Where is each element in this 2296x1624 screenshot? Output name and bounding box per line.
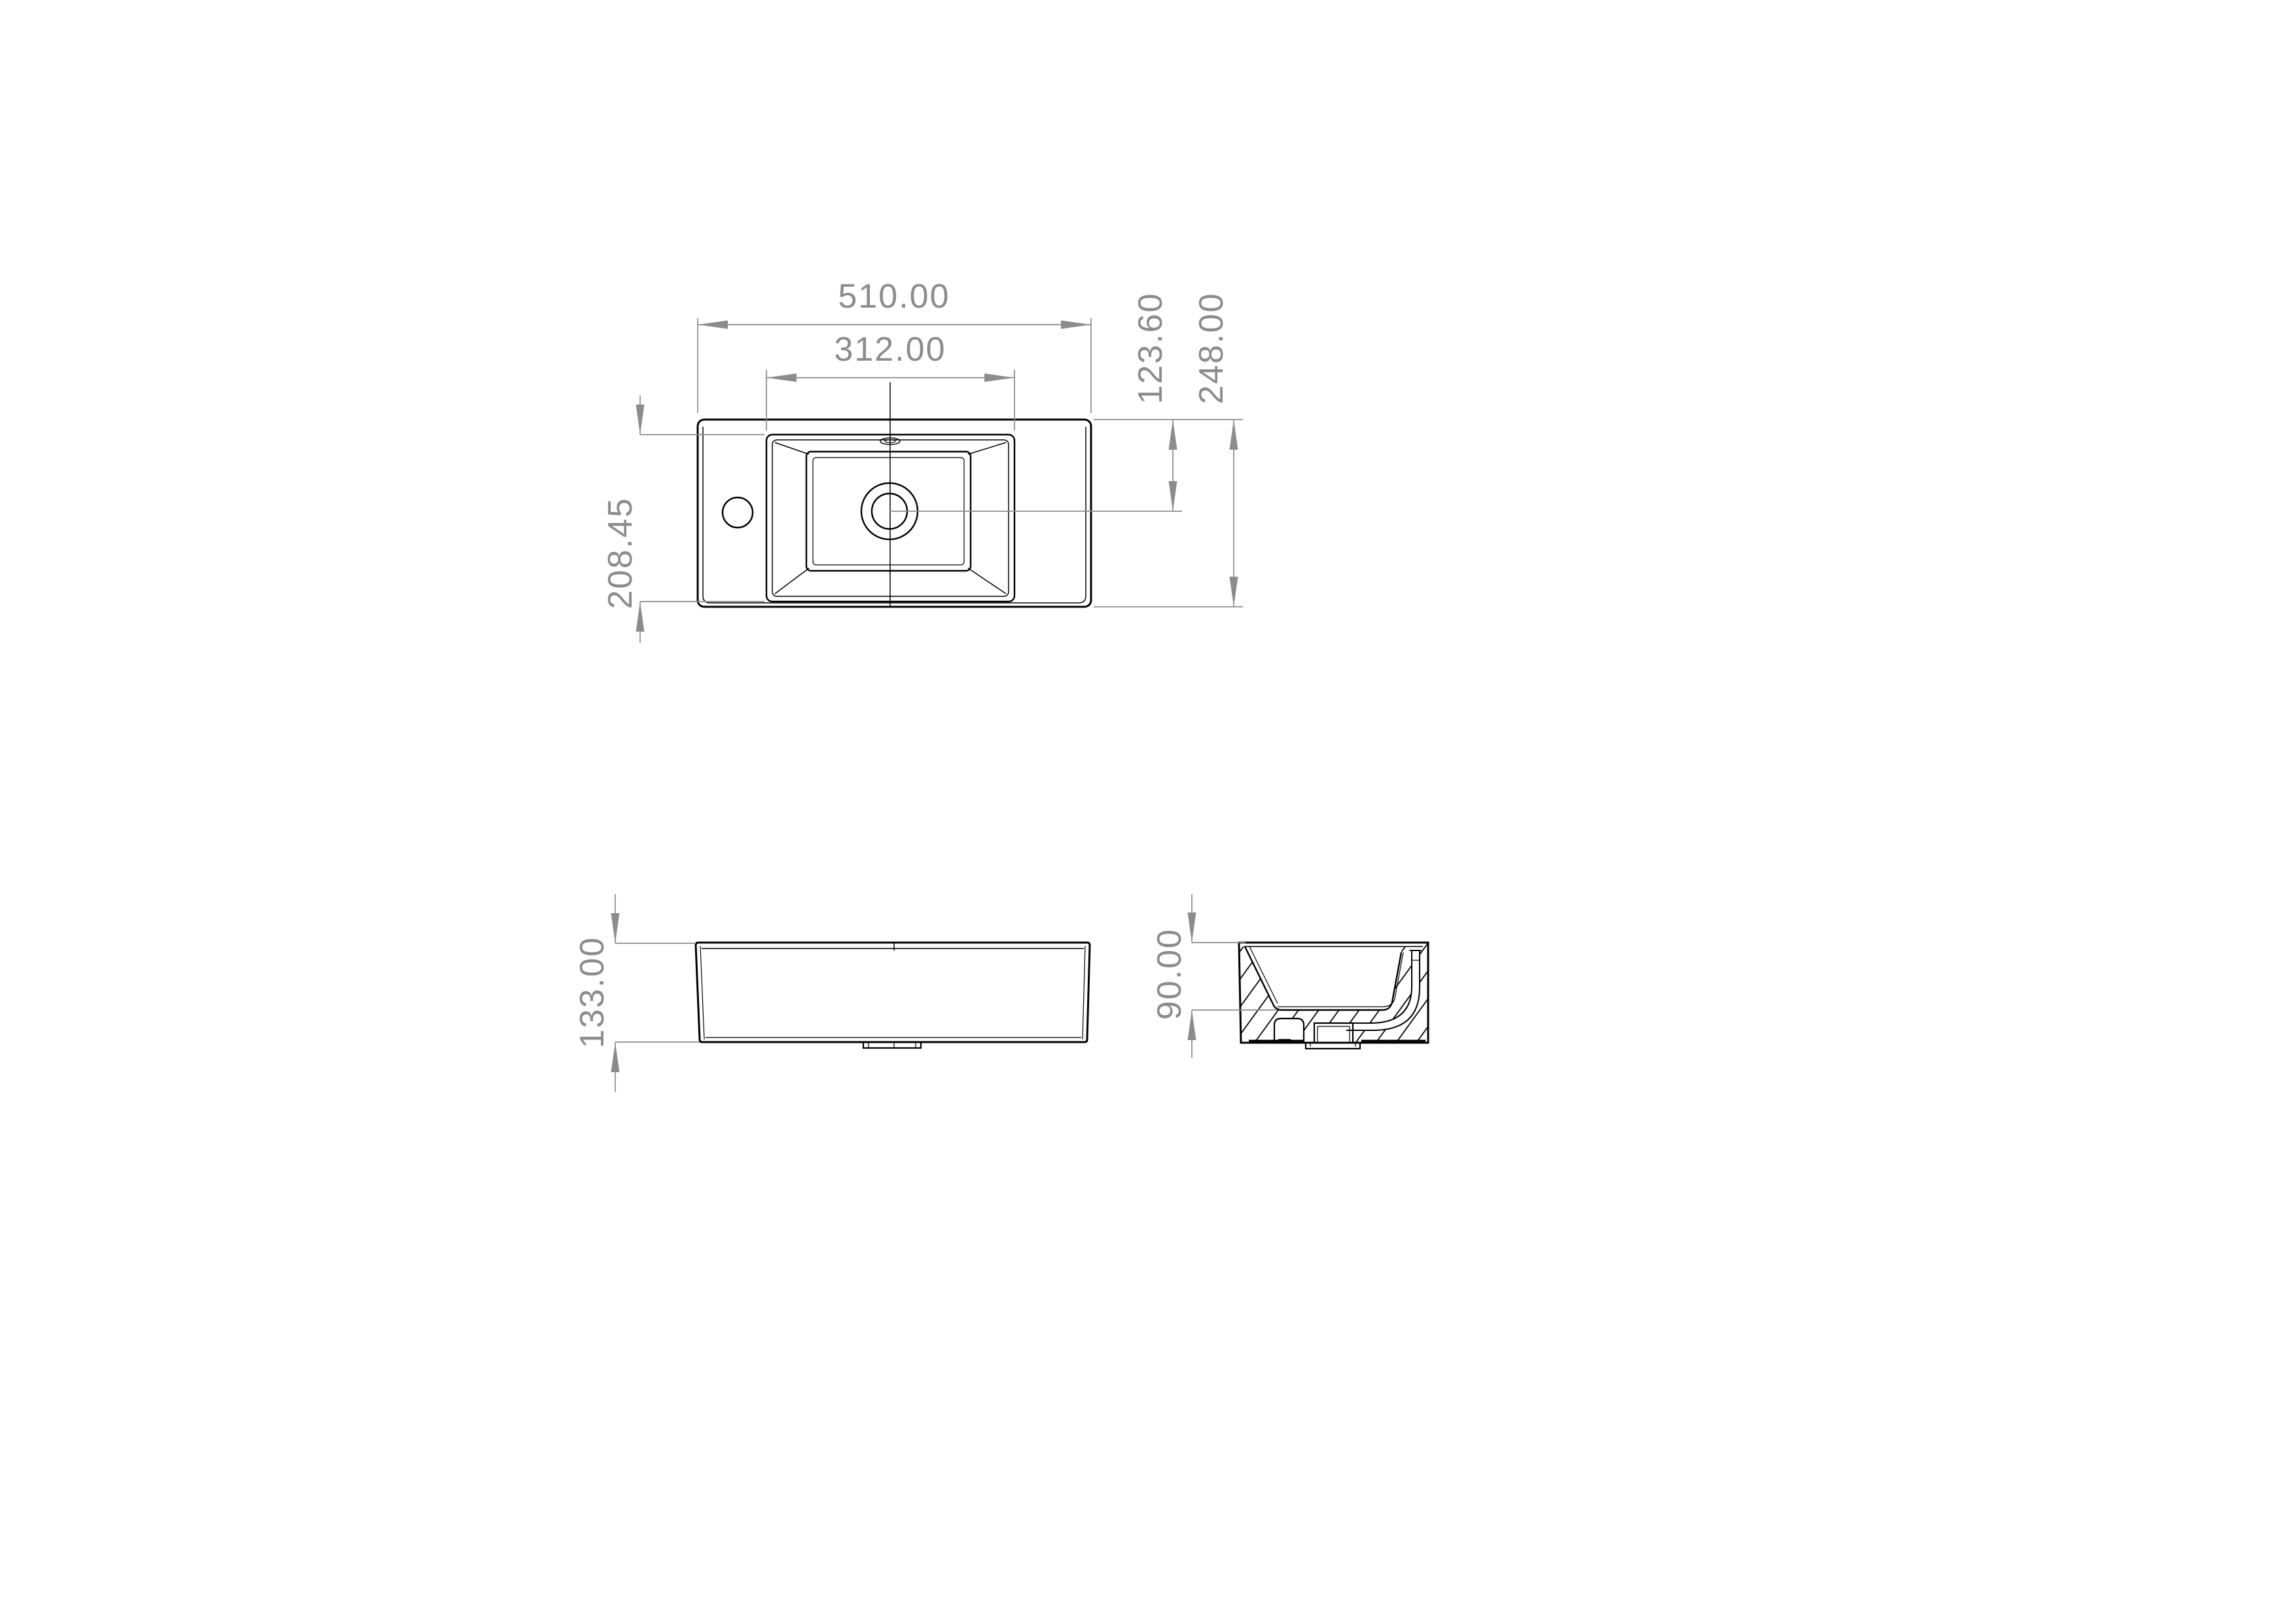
front-left-edge-line xyxy=(700,946,704,1039)
dim-arrow xyxy=(1169,420,1177,450)
dim-overall-width-label: 510.00 xyxy=(838,278,950,316)
dim-basin-width-label: 312.00 xyxy=(834,331,946,369)
basin-corner-diagonal xyxy=(775,568,809,594)
sink-outline xyxy=(698,420,1091,607)
dim-overall-height-label: 133.00 xyxy=(573,936,611,1048)
dim-overall-height: 133.00 xyxy=(573,894,700,1092)
dim-arrow xyxy=(1230,577,1238,607)
side-section-view xyxy=(1239,943,1429,1049)
dim-arrow xyxy=(636,405,645,435)
plan-view xyxy=(698,382,1091,607)
front-right-edge-line xyxy=(1083,946,1085,1039)
front-view xyxy=(696,943,1090,1048)
faucet-hole xyxy=(723,497,753,528)
sink-inner-edge xyxy=(703,427,1086,603)
basin-corner-diagonal xyxy=(775,442,809,454)
dim-arrow xyxy=(1188,1010,1196,1040)
dim-overall-depth-label: 248.00 xyxy=(1193,292,1230,404)
dim-arrow xyxy=(1188,912,1196,943)
dim-basin-depth: 208.45 xyxy=(601,395,764,643)
basin-corner-diagonal xyxy=(968,442,1006,454)
dim-arrow xyxy=(698,321,728,329)
dim-arrow xyxy=(611,1042,620,1072)
dim-arrow xyxy=(1230,420,1238,450)
dim-arrow xyxy=(1061,321,1091,329)
dim-drain-from-back-label: 123.60 xyxy=(1132,292,1170,404)
dim-basin-depth-label: 208.45 xyxy=(601,497,639,609)
dim-arrow xyxy=(766,374,797,382)
drawing-canvas: 510.00 312.00 123.60 248.00 208.45 xyxy=(0,0,2296,1624)
dim-arrow xyxy=(611,913,620,943)
dim-arrow xyxy=(1169,481,1177,511)
dim-basin-inner-depth-label: 90.00 xyxy=(1151,928,1189,1020)
basin-corner-diagonal xyxy=(968,568,1006,594)
front-outline xyxy=(696,943,1090,1042)
technical-drawing: 510.00 312.00 123.60 248.00 208.45 xyxy=(0,0,2296,1624)
dim-arrow xyxy=(984,374,1014,382)
